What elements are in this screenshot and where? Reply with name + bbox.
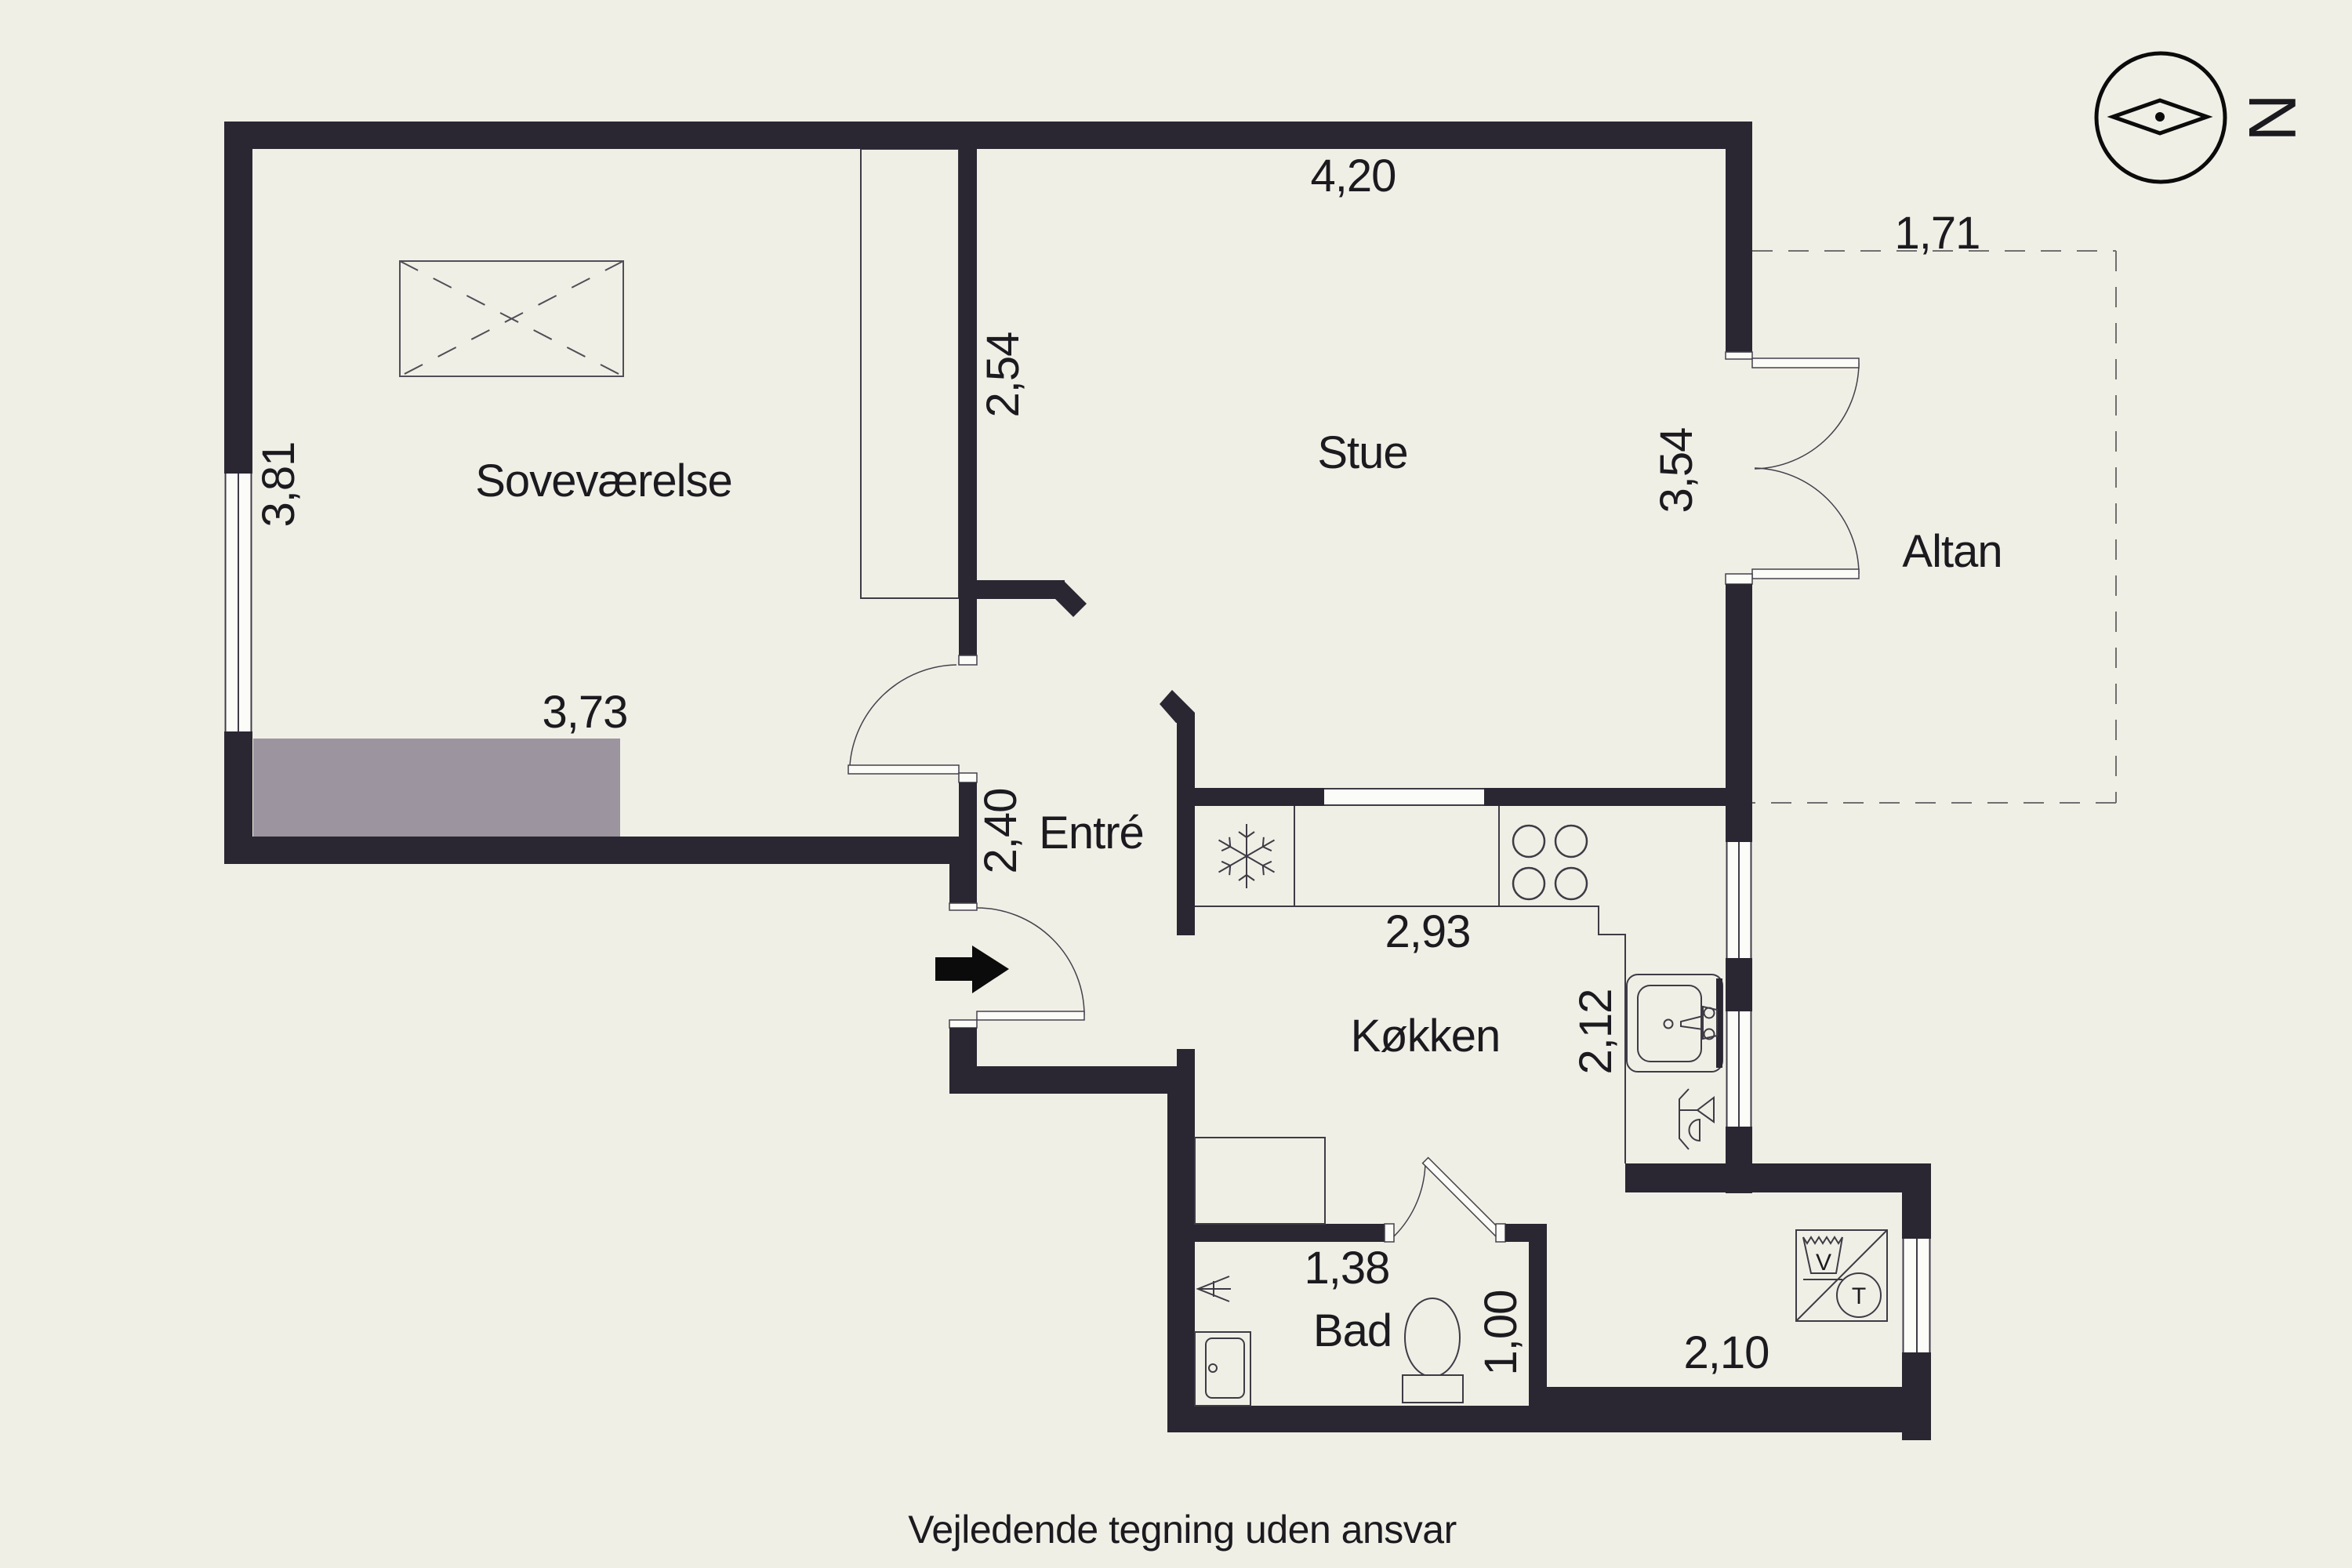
svg-text:N: N bbox=[2234, 93, 2309, 141]
svg-text:3,54: 3,54 bbox=[1651, 428, 1702, 514]
svg-text:1,38: 1,38 bbox=[1305, 1243, 1390, 1294]
svg-text:Soveværelse: Soveværelse bbox=[475, 456, 731, 506]
svg-text:2,93: 2,93 bbox=[1385, 906, 1471, 957]
svg-text:V: V bbox=[1816, 1250, 1831, 1276]
svg-text:Bad: Bad bbox=[1313, 1305, 1392, 1356]
svg-text:2,40: 2,40 bbox=[975, 789, 1026, 874]
svg-text:2,12: 2,12 bbox=[1570, 989, 1621, 1075]
svg-text:Vejledende tegning uden ansvar: Vejledende tegning uden ansvar bbox=[908, 1508, 1456, 1552]
svg-text:Entré: Entré bbox=[1039, 808, 1144, 858]
svg-text:1,00: 1,00 bbox=[1475, 1290, 1526, 1376]
svg-text:T: T bbox=[1852, 1283, 1866, 1309]
svg-text:3,81: 3,81 bbox=[253, 442, 304, 528]
svg-text:4,20: 4,20 bbox=[1311, 151, 1396, 201]
svg-text:Køkken: Køkken bbox=[1351, 1011, 1501, 1062]
svg-text:3,73: 3,73 bbox=[543, 687, 628, 738]
svg-text:1,71: 1,71 bbox=[1895, 208, 1980, 259]
svg-text:Altan: Altan bbox=[1902, 526, 2002, 577]
svg-text:Stue: Stue bbox=[1317, 427, 1407, 478]
svg-text:2,10: 2,10 bbox=[1684, 1327, 1769, 1378]
svg-text:2,54: 2,54 bbox=[978, 332, 1029, 418]
